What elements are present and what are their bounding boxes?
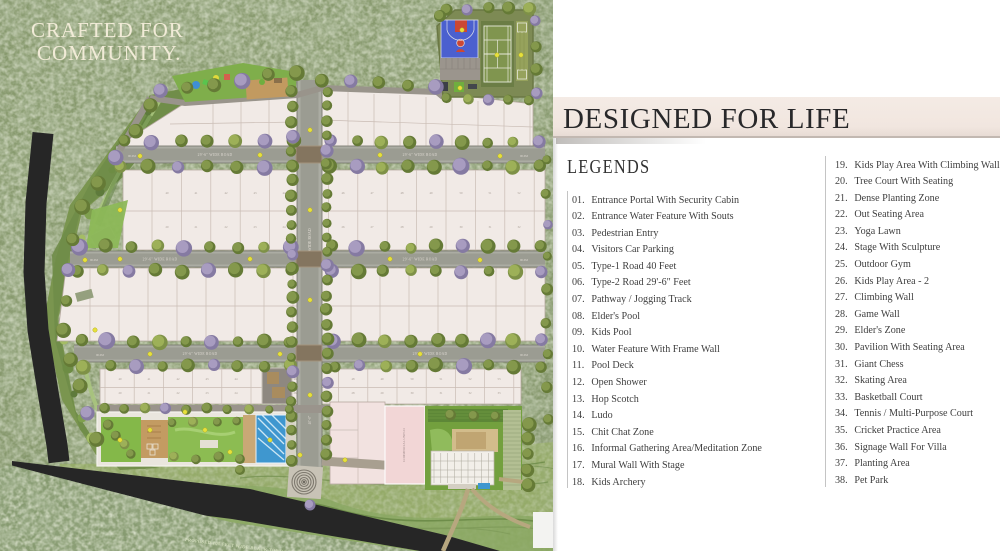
svg-text:33: 33 [498, 391, 502, 395]
svg-text:49: 49 [430, 191, 434, 195]
svg-text:53: 53 [498, 377, 502, 381]
svg-text:42: 42 [177, 377, 181, 381]
svg-text:29'-6" WIDE ROAD: 29'-6" WIDE ROAD [403, 257, 438, 261]
svg-text:90.0M: 90.0M [520, 353, 528, 357]
svg-text:COMMERCIAL UNIT-01: COMMERCIAL UNIT-01 [402, 428, 406, 462]
svg-text:46: 46 [342, 191, 346, 195]
svg-text:29'-6" WIDE ROAD: 29'-6" WIDE ROAD [183, 352, 218, 356]
svg-text:41: 41 [195, 191, 199, 195]
svg-text:29: 29 [430, 225, 434, 229]
svg-text:21: 21 [195, 225, 199, 229]
svg-text:52: 52 [469, 377, 473, 381]
svg-text:32: 32 [518, 225, 522, 229]
svg-text:CRAFTED FOR: CRAFTED FOR [31, 18, 184, 42]
svg-text:27: 27 [371, 225, 375, 229]
svg-text:29: 29 [381, 391, 385, 395]
svg-text:24: 24 [235, 391, 239, 395]
svg-text:50: 50 [460, 191, 464, 195]
svg-text:30: 30 [411, 391, 415, 395]
svg-text:90.0M: 90.0M [520, 154, 528, 158]
svg-text:44: 44 [235, 377, 239, 381]
svg-text:28: 28 [401, 225, 405, 229]
svg-text:90.0M: 90.0M [90, 258, 98, 262]
svg-text:29'-6" WIDE ROAD: 29'-6" WIDE ROAD [143, 257, 178, 261]
svg-text:20: 20 [166, 225, 170, 229]
svg-text:30: 30 [460, 225, 464, 229]
svg-text:31: 31 [440, 391, 444, 395]
svg-text:40: 40 [166, 191, 170, 195]
svg-text:29'-6" WIDE ROAD: 29'-6" WIDE ROAD [198, 153, 233, 157]
svg-text:51: 51 [440, 377, 444, 381]
svg-text:51: 51 [489, 191, 493, 195]
svg-text:90.0M: 90.0M [520, 258, 528, 262]
svg-text:23: 23 [254, 225, 258, 229]
svg-text:90.0M: 90.0M [96, 353, 104, 357]
svg-text:50: 50 [411, 377, 415, 381]
svg-text:42: 42 [225, 191, 229, 195]
svg-text:41: 41 [148, 377, 152, 381]
svg-text:43: 43 [254, 191, 258, 195]
svg-text:52: 52 [518, 191, 522, 195]
svg-text:23: 23 [206, 391, 210, 395]
svg-text:28: 28 [352, 391, 356, 395]
svg-text:24: 24 [283, 225, 287, 229]
svg-text:22: 22 [225, 225, 229, 229]
svg-text:32: 32 [469, 391, 473, 395]
svg-text:49: 49 [381, 377, 385, 381]
svg-text:22: 22 [177, 391, 181, 395]
svg-text:40: 40 [119, 377, 123, 381]
svg-text:90.0M: 90.0M [128, 154, 136, 158]
svg-text:21: 21 [148, 391, 152, 395]
svg-text:40'-0": 40'-0" [308, 415, 312, 424]
svg-text:48: 48 [352, 377, 356, 381]
svg-text:26: 26 [342, 225, 346, 229]
svg-text:20: 20 [119, 391, 123, 395]
svg-text:COMMUNITY.: COMMUNITY. [37, 41, 181, 65]
svg-text:48: 48 [401, 191, 405, 195]
svg-text:43: 43 [206, 377, 210, 381]
svg-text:29'-6" WIDE ROAD: 29'-6" WIDE ROAD [403, 153, 438, 157]
svg-text:31: 31 [489, 225, 493, 229]
svg-text:47: 47 [371, 191, 375, 195]
